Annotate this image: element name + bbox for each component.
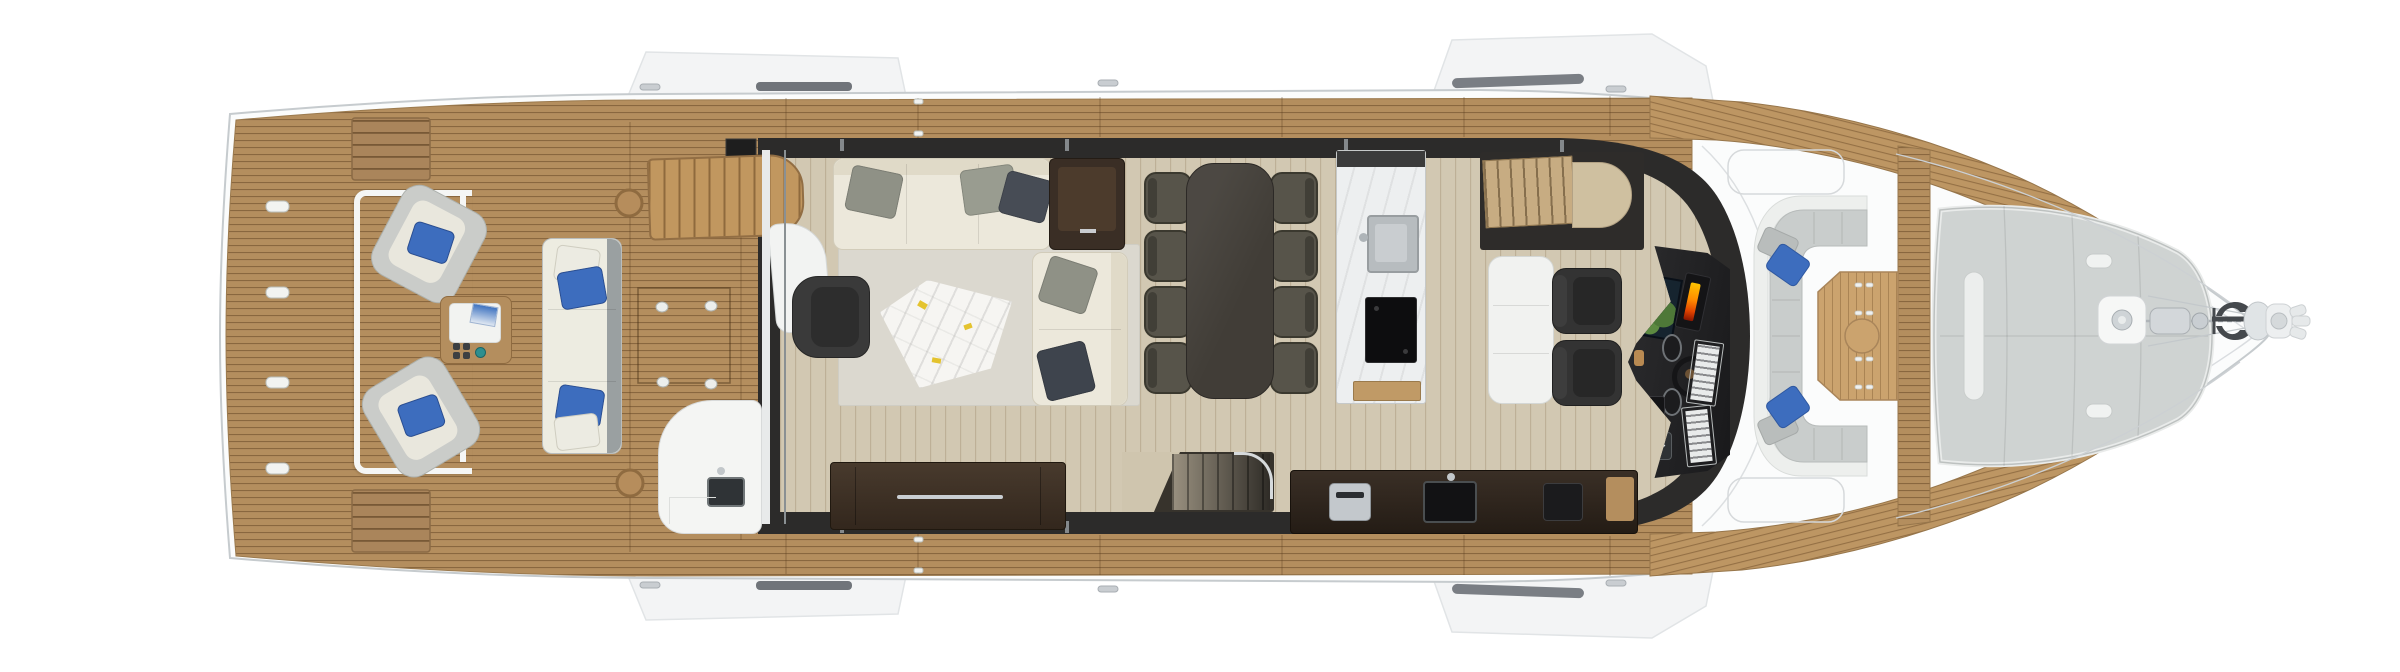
counter-appliance: [1543, 483, 1583, 521]
sofa-pillow-blue: [556, 265, 608, 310]
loveseat-pillow-gray: [1037, 254, 1099, 315]
counter-faucet: [1447, 473, 1455, 481]
cooktop-knob: [1403, 349, 1408, 354]
bar-faucet: [717, 467, 725, 475]
chart-plotter-screen: [1631, 273, 1683, 341]
aft-sofa: [542, 238, 622, 454]
helm-console: [1628, 246, 1730, 478]
counter-sink: [1423, 481, 1477, 523]
throttle-levers: [1634, 350, 1644, 366]
sofa-backrest: [607, 239, 621, 453]
salon-armchair: [792, 276, 870, 358]
galley-sink: [1367, 215, 1419, 273]
stairs-to-cabins: [1122, 452, 1274, 512]
companion-settee: [1488, 256, 1554, 404]
dining-chair: [1270, 230, 1318, 282]
helm-chair-seat: [1573, 349, 1615, 397]
galley-cabinet: [1353, 381, 1421, 401]
counter-teak-end: [1606, 477, 1634, 521]
wet-bar: [658, 400, 762, 534]
dining-chair: [1144, 172, 1192, 224]
dining-chair: [1270, 342, 1318, 394]
end-table-top: [1058, 167, 1116, 231]
armchair-seat: [811, 287, 859, 347]
gold-fleck: [963, 323, 972, 330]
chevron-icon: [1650, 438, 1666, 454]
joystick-pod: [1662, 388, 1682, 416]
magazine: [469, 303, 498, 327]
gold-fleck: [932, 357, 942, 363]
helm-chair-back: [1553, 347, 1567, 399]
salon-end-table: [1049, 158, 1125, 250]
galley-backsplash: [1337, 151, 1425, 167]
espresso-machine: [1329, 483, 1371, 521]
helm-chair-starboard: [1552, 340, 1622, 406]
engine-display-flame: [1683, 282, 1701, 321]
galley-faucet: [1359, 233, 1368, 242]
yacht-deck-plan: [0, 0, 2400, 672]
bar-seam: [669, 497, 716, 524]
port-stair-landing: [1572, 162, 1632, 228]
instrument-panel: [1686, 339, 1725, 407]
gold-fleck: [917, 300, 928, 310]
helm-chair-back: [1553, 275, 1567, 327]
end-table-item: [1080, 229, 1096, 233]
salon-sideboard: [830, 462, 1066, 530]
joystick-pod: [1662, 334, 1682, 362]
port-stair-treads: [1482, 156, 1575, 229]
sideboard-divider: [1040, 467, 1041, 525]
starboard-counter: [1290, 470, 1638, 534]
loveseat-pillow-navy: [1035, 340, 1096, 403]
salon-loveseat: [1032, 252, 1128, 406]
salon-sofa-long: [833, 158, 1051, 250]
keypad: [1642, 432, 1672, 460]
port-stairs: [1480, 152, 1644, 250]
helm-chair-port: [1552, 268, 1622, 334]
dining-chair: [1270, 286, 1318, 338]
salon-door-track: [762, 150, 770, 524]
cocktail-table: [440, 296, 512, 364]
cup: [453, 352, 460, 359]
dining-chair: [1270, 172, 1318, 224]
cup: [463, 352, 470, 359]
sideboard-divider: [855, 467, 856, 525]
instrument-panel: [1681, 405, 1717, 468]
dining-table: [1186, 163, 1274, 399]
dining-chair: [1144, 286, 1192, 338]
cup: [463, 343, 470, 350]
dining-chair: [1144, 342, 1192, 394]
throttle-cluster: [1643, 396, 1665, 426]
helm-chair-seat: [1573, 277, 1615, 325]
teal-cup: [475, 347, 486, 358]
salon-pillow-gray: [844, 164, 904, 220]
galley-island: [1336, 150, 1426, 404]
galley-cooktop: [1365, 297, 1417, 363]
sideboard-handle: [897, 495, 1003, 499]
cup: [453, 343, 460, 350]
sofa-pillow-white: [553, 412, 601, 451]
sink-basin: [1375, 224, 1407, 262]
dining-chair: [1144, 230, 1192, 282]
cooktop-knob: [1374, 306, 1379, 311]
salon-pillow-navy: [997, 170, 1055, 225]
furniture-layer: [0, 0, 2400, 672]
salon-door-track-line: [784, 150, 786, 524]
espresso-slot: [1336, 492, 1364, 498]
